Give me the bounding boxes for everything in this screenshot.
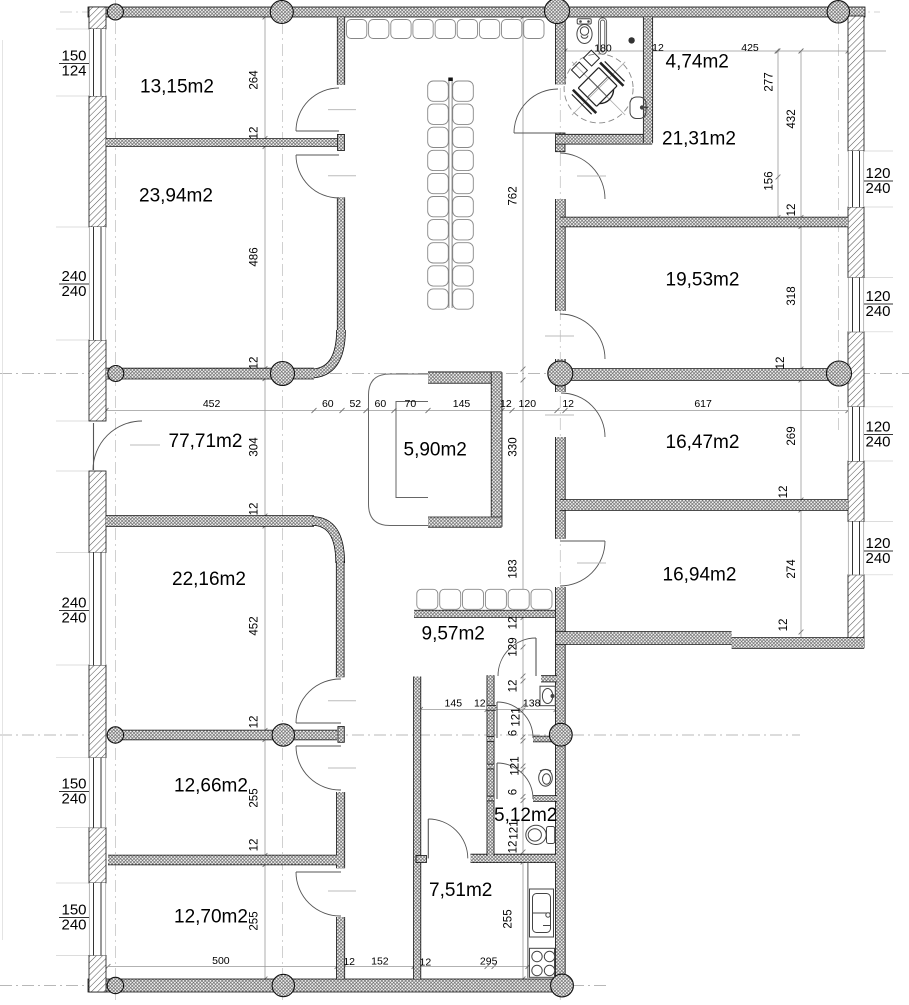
svg-text:240: 240 xyxy=(865,434,890,451)
svg-text:240: 240 xyxy=(61,791,86,808)
svg-text:52: 52 xyxy=(349,398,361,410)
svg-text:12: 12 xyxy=(652,42,664,54)
svg-text:295: 295 xyxy=(480,956,498,968)
svg-text:452: 452 xyxy=(203,398,221,410)
svg-text:60: 60 xyxy=(322,398,334,410)
svg-text:12: 12 xyxy=(249,839,261,852)
svg-text:152: 152 xyxy=(371,956,389,968)
svg-text:12: 12 xyxy=(778,619,790,632)
svg-text:255: 255 xyxy=(503,909,515,928)
svg-text:5,12m2: 5,12m2 xyxy=(494,805,557,826)
svg-text:129: 129 xyxy=(508,637,520,656)
svg-text:12: 12 xyxy=(343,956,355,968)
svg-text:12: 12 xyxy=(249,127,261,140)
svg-text:60: 60 xyxy=(375,398,387,410)
svg-text:4,74m2: 4,74m2 xyxy=(666,52,729,73)
svg-text:12: 12 xyxy=(420,957,432,969)
svg-text:12: 12 xyxy=(508,680,520,693)
svg-text:240: 240 xyxy=(61,610,86,627)
svg-text:21,31m2: 21,31m2 xyxy=(662,129,736,150)
svg-text:255: 255 xyxy=(249,788,261,807)
svg-text:12: 12 xyxy=(562,398,574,410)
svg-text:145: 145 xyxy=(453,398,471,410)
svg-text:12: 12 xyxy=(249,503,261,516)
svg-text:121: 121 xyxy=(510,756,522,775)
svg-text:500: 500 xyxy=(212,955,230,967)
svg-text:240: 240 xyxy=(61,283,86,300)
svg-text:120: 120 xyxy=(519,398,537,410)
svg-text:9,57m2: 9,57m2 xyxy=(422,624,485,645)
svg-text:264: 264 xyxy=(249,70,261,90)
svg-text:124: 124 xyxy=(61,63,86,80)
svg-text:77,71m2: 77,71m2 xyxy=(169,431,243,452)
svg-text:274: 274 xyxy=(786,559,798,579)
svg-text:240: 240 xyxy=(865,303,890,320)
svg-text:70: 70 xyxy=(405,398,417,410)
svg-text:5,90m2: 5,90m2 xyxy=(404,440,467,461)
svg-text:7,51m2: 7,51m2 xyxy=(429,880,492,901)
svg-text:156: 156 xyxy=(764,171,776,190)
svg-text:16,47m2: 16,47m2 xyxy=(666,432,740,453)
svg-text:12: 12 xyxy=(508,841,520,854)
svg-text:23,94m2: 23,94m2 xyxy=(139,186,213,207)
svg-text:240: 240 xyxy=(865,550,890,567)
svg-text:121: 121 xyxy=(511,707,523,726)
svg-text:12: 12 xyxy=(508,617,520,630)
svg-text:12: 12 xyxy=(249,357,261,370)
svg-text:12: 12 xyxy=(786,204,798,217)
svg-text:12: 12 xyxy=(775,357,787,370)
svg-text:6: 6 xyxy=(508,730,520,736)
svg-text:16,94m2: 16,94m2 xyxy=(663,565,737,586)
svg-text:452: 452 xyxy=(249,616,261,635)
svg-text:255: 255 xyxy=(249,911,261,930)
svg-text:19,53m2: 19,53m2 xyxy=(666,270,740,291)
svg-text:486: 486 xyxy=(249,247,261,266)
svg-text:240: 240 xyxy=(61,917,86,934)
svg-text:22,16m2: 22,16m2 xyxy=(172,569,246,590)
svg-text:330: 330 xyxy=(508,437,520,456)
svg-text:6: 6 xyxy=(508,789,520,795)
svg-text:12: 12 xyxy=(500,398,512,410)
svg-text:13,15m2: 13,15m2 xyxy=(140,77,214,98)
svg-text:12: 12 xyxy=(474,698,486,710)
svg-text:12,66m2: 12,66m2 xyxy=(174,776,248,797)
svg-text:183: 183 xyxy=(508,559,520,578)
svg-text:277: 277 xyxy=(764,72,776,91)
svg-text:269: 269 xyxy=(786,426,798,445)
svg-text:318: 318 xyxy=(786,286,798,305)
svg-text:138: 138 xyxy=(523,698,541,710)
svg-text:12: 12 xyxy=(249,716,261,729)
svg-text:12: 12 xyxy=(778,486,790,499)
svg-text:304: 304 xyxy=(249,437,261,457)
svg-text:12,70m2: 12,70m2 xyxy=(174,907,248,928)
svg-text:762: 762 xyxy=(508,186,520,205)
svg-text:121: 121 xyxy=(509,820,521,839)
svg-text:432: 432 xyxy=(786,109,798,128)
svg-text:180: 180 xyxy=(594,43,612,55)
svg-text:425: 425 xyxy=(741,42,759,54)
svg-text:240: 240 xyxy=(865,180,890,197)
svg-text:617: 617 xyxy=(694,398,712,410)
svg-text:145: 145 xyxy=(445,698,463,710)
